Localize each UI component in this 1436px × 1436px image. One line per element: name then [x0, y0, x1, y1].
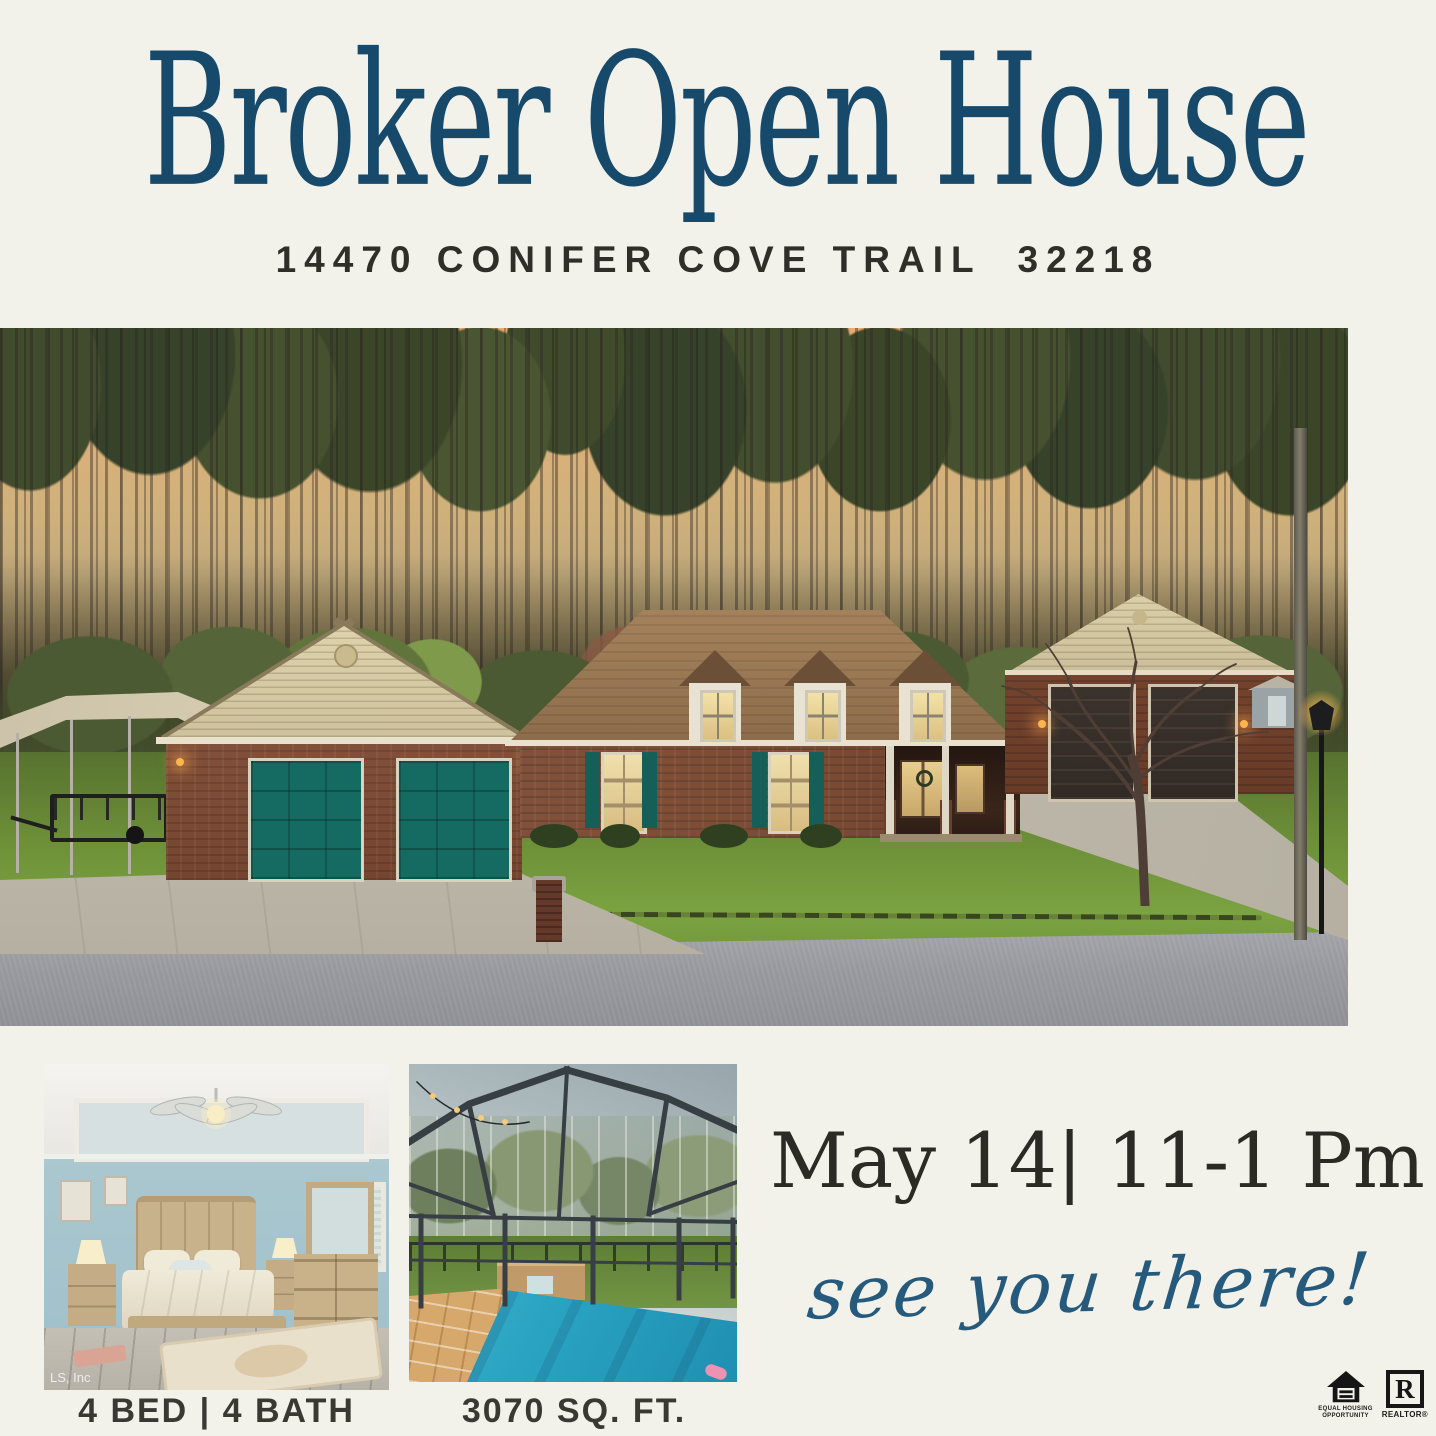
dormer-lit-window	[805, 690, 841, 742]
shrub	[700, 824, 748, 848]
shuttered-window	[585, 752, 657, 828]
dormer-lit-window	[910, 690, 946, 742]
equal-housing-house-icon	[1326, 1370, 1366, 1406]
ceiling-fan	[148, 1080, 284, 1140]
window-shutter	[809, 752, 824, 828]
gable-vent	[334, 644, 358, 668]
carport-post	[16, 733, 19, 873]
dormer-lit-window	[700, 690, 736, 742]
realtor-label: REALTOR®	[1382, 1410, 1428, 1419]
shrub	[530, 824, 578, 848]
shuttered-window	[752, 752, 824, 828]
utility-trailer	[50, 794, 168, 842]
teal-garage-door-right	[396, 758, 512, 882]
dormer-roof	[679, 650, 751, 686]
photo-watermark: LS, Inc	[50, 1370, 90, 1385]
screen-enclosure-frame	[409, 1064, 737, 1382]
footer-logos: EQUAL HOUSING OPPORTUNITY R REALTOR®	[1318, 1370, 1428, 1420]
dormer-roof	[784, 650, 856, 686]
event-datetime: May 14| 11-1 Pm	[770, 1116, 1410, 1205]
dormer-window	[895, 650, 955, 740]
sqft-caption: 3070 SQ. FT.	[409, 1392, 739, 1431]
wall-art	[104, 1176, 128, 1206]
nightstand-left	[68, 1264, 116, 1326]
pool-photo	[409, 1064, 737, 1382]
equal-housing-logo: EQUAL HOUSING OPPORTUNITY	[1318, 1370, 1372, 1420]
realtor-logo: R REALTOR®	[1382, 1370, 1428, 1419]
realtor-r-letter: R	[1395, 1376, 1415, 1403]
event-tagline-script: see you there!	[764, 1235, 1416, 1336]
window-wreath	[916, 770, 933, 787]
porch-post	[942, 746, 949, 840]
crown-molding	[44, 1154, 389, 1159]
window-shutter	[642, 752, 657, 828]
dormer-window	[790, 650, 850, 740]
beds-baths-caption: 4 BED | 4 BATH	[44, 1392, 389, 1431]
realtor-r-icon: R	[1386, 1370, 1424, 1408]
bedroom-photo: LS, Inc	[44, 1064, 389, 1390]
equal-housing-label-line1: EQUAL HOUSING	[1318, 1406, 1372, 1413]
equal-housing-label-line2: OPPORTUNITY	[1322, 1413, 1369, 1420]
shrub	[600, 824, 640, 848]
porch-post	[886, 746, 894, 840]
teal-garage-door-left	[248, 758, 364, 882]
dormer-window	[685, 650, 745, 740]
lit-window-pane	[768, 752, 814, 834]
window-shutter	[752, 752, 767, 828]
lit-window-pane	[601, 752, 647, 834]
bare-front-yard-tree	[950, 620, 1280, 906]
brick-mailbox	[536, 880, 562, 942]
wall-art	[60, 1180, 92, 1222]
trailer-wheel	[126, 826, 144, 844]
shrub	[800, 824, 842, 848]
lamp-post	[1319, 728, 1324, 934]
page-title: Broker Open House	[144, 27, 1293, 219]
eave-fascia	[156, 737, 532, 744]
main-house-photo	[0, 328, 1348, 1026]
flyer-canvas: Broker Open House 14470 CONIFER COVE TRA…	[0, 0, 1436, 1436]
window-shutter	[585, 752, 600, 828]
porch-sconce	[176, 758, 184, 766]
property-address: 14470 CONIFER COVE TRAIL 32218	[0, 239, 1436, 281]
utility-pole	[1294, 428, 1307, 940]
